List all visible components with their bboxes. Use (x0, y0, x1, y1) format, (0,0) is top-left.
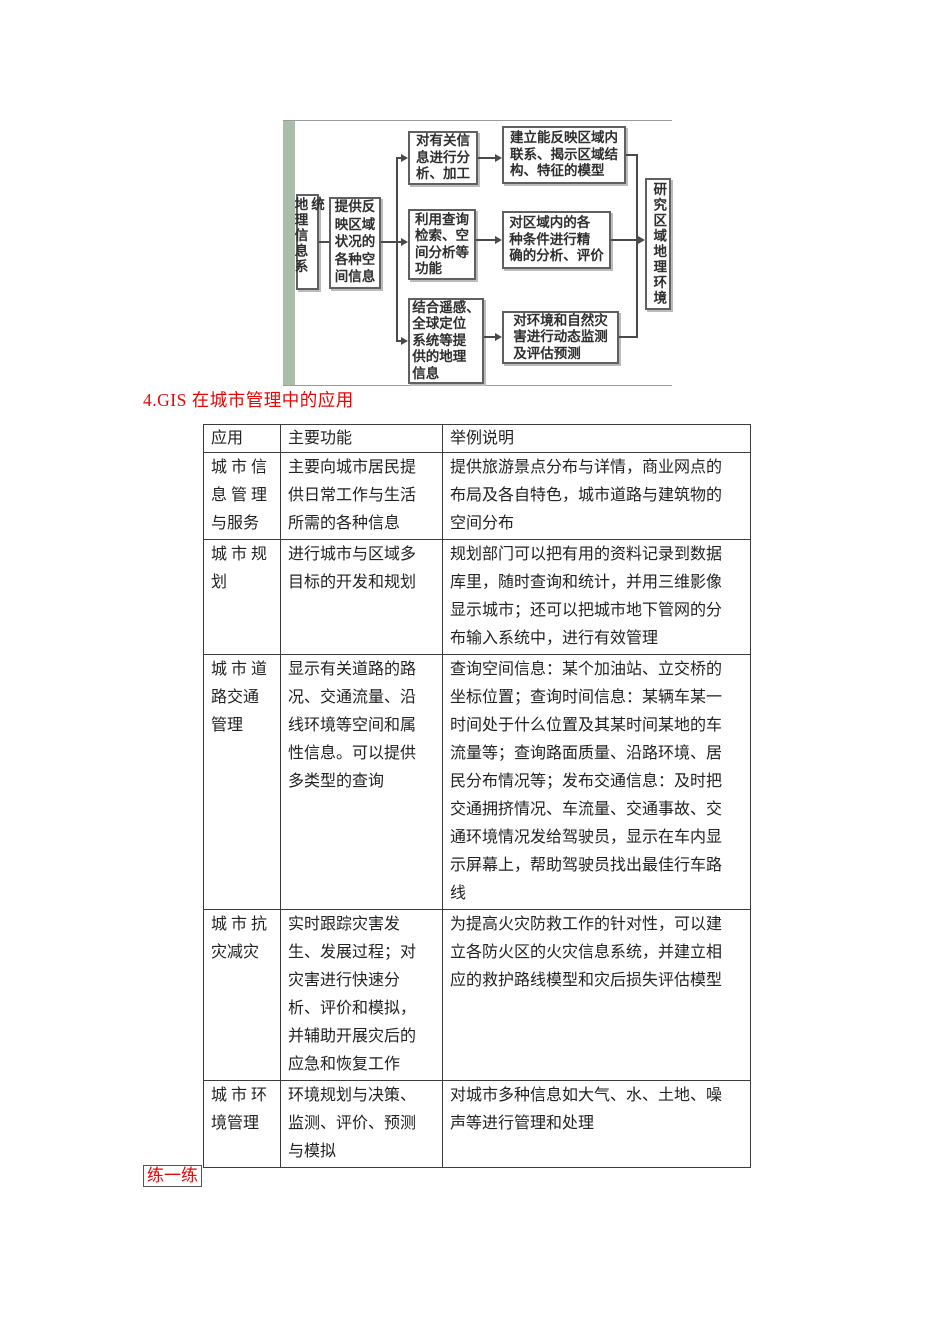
cell-main-function: 显示有关道路的路 况、交通流量、沿 线环境等空间和属 性信息。可以提供 多类型的… (281, 655, 443, 910)
flow-box-spatial-info: 提供反 映区域 状况的 各种空 间信息 (329, 197, 381, 289)
cell-application: 城 市 规 划 (204, 540, 281, 655)
cell-application: 城 市 道 路交通 管理 (204, 655, 281, 910)
cell-example: 规划部门可以把有用的资料记录到数据 库里，随时查询和统计，并用三维影像 显示城市… (443, 540, 751, 655)
cell-example: 查询空间信息：某个加油站、立交桥的 坐标位置；查询时间信息：某辆车某一 时间处于… (443, 655, 751, 910)
cell-main-function: 主要向城市居民提 供日常工作与生活 所需的各种信息 (281, 453, 443, 540)
arrowhead-icon (495, 154, 502, 162)
flow-box-study-regional-environment: 研究区域地理环境 (645, 178, 671, 310)
table-row: 城 市 抗 灾减灾 实时跟踪灾害发 生、发展过程；对 灾害进行快速分 析、评价和… (204, 910, 751, 1081)
flow-box-query-spatial-analysis: 利用查询 检索、空 间分析等 功能 (408, 209, 476, 280)
arrowhead-icon (495, 333, 502, 341)
flow-box-gis-system: 地理信息系统 (296, 194, 319, 290)
flow-box-rs-gps-info: 结合遥感、 全球定位 系统等提 供的地理 信息 (408, 298, 484, 384)
connector-line (319, 241, 329, 243)
flow-box-analyze-process: 对有关信 息进行分 析、加工 (408, 131, 478, 185)
cell-example: 为提高火灾防救工作的针对性，可以建 立各防火区的火灾信息系统，并建立相 应的救护… (443, 910, 751, 1081)
flow-box-precise-evaluation: 对区域内的各 种条件进行精 确的分析、评价 (502, 211, 611, 269)
table-header-row: 应用 主要功能 举例说明 (204, 425, 751, 453)
column-header-example: 举例说明 (443, 425, 751, 453)
cell-example: 提供旅游景点分布与详情，商业网点的 布局及各自特色，城市道路与建筑物的 空间分布 (443, 453, 751, 540)
connector-line (476, 239, 495, 241)
section-heading: 4.GIS 在城市管理中的应用 (143, 389, 354, 411)
table-row: 城 市 信 息 管 理 与服务 主要向城市居民提 供日常工作与生活 所需的各种信… (204, 453, 751, 540)
gis-application-table: 应用 主要功能 举例说明 城 市 信 息 管 理 与服务 主要向城市居民提 供日… (203, 424, 751, 1168)
cell-main-function: 环境规划与决策、 监测、评价、预测 与模拟 (281, 1081, 443, 1168)
practice-label: 练一练 (143, 1165, 202, 1187)
arrowhead-icon (495, 236, 502, 244)
column-header-main-function: 主要功能 (281, 425, 443, 453)
arrowhead-icon (401, 337, 408, 345)
arrowhead-icon (638, 236, 645, 244)
table-row: 城 市 环 境管理 环境规划与决策、 监测、评价、预测 与模拟 对城市多种信息如… (204, 1081, 751, 1168)
table-row: 城 市 道 路交通 管理 显示有关道路的路 况、交通流量、沿 线环境等空间和属 … (204, 655, 751, 910)
arrowhead-icon (401, 238, 408, 246)
column-header-application: 应用 (204, 425, 281, 453)
cell-application: 城 市 抗 灾减灾 (204, 910, 281, 1081)
flow-box-build-model: 建立能反映区域内 联系、揭示区域结 构、特征的模型 (502, 126, 626, 184)
cell-main-function: 进行城市与区域多 目标的开发和规划 (281, 540, 443, 655)
cell-application: 城 市 环 境管理 (204, 1081, 281, 1168)
arrowhead-icon (401, 154, 408, 162)
connector-line (478, 157, 495, 159)
connector-line (636, 154, 638, 338)
table-row: 城 市 规 划 进行城市与区域多 目标的开发和规划 规划部门可以把有用的资料记录… (204, 540, 751, 655)
connector-line (611, 239, 638, 241)
cell-example: 对城市多种信息如大气、水、土地、噪 声等进行管理和处理 (443, 1081, 751, 1168)
connector-line (484, 336, 495, 338)
connector-line (396, 157, 398, 342)
cell-application: 城 市 信 息 管 理 与服务 (204, 453, 281, 540)
gis-flowchart-figure: 地理信息系统 提供反 映区域 状况的 各种空 间信息 对有关信 息进行分 析、加… (283, 120, 672, 386)
flow-box-dynamic-monitoring: 对环境和自然灾 害进行动态监测 及评估预测 (502, 311, 619, 364)
cell-main-function: 实时跟踪灾害发 生、发展过程；对 灾害进行快速分 析、评价和模拟， 并辅助开展灾… (281, 910, 443, 1081)
document-page: { "heading": { "text": "4.GIS 在城市管理中的应用"… (0, 0, 950, 1344)
